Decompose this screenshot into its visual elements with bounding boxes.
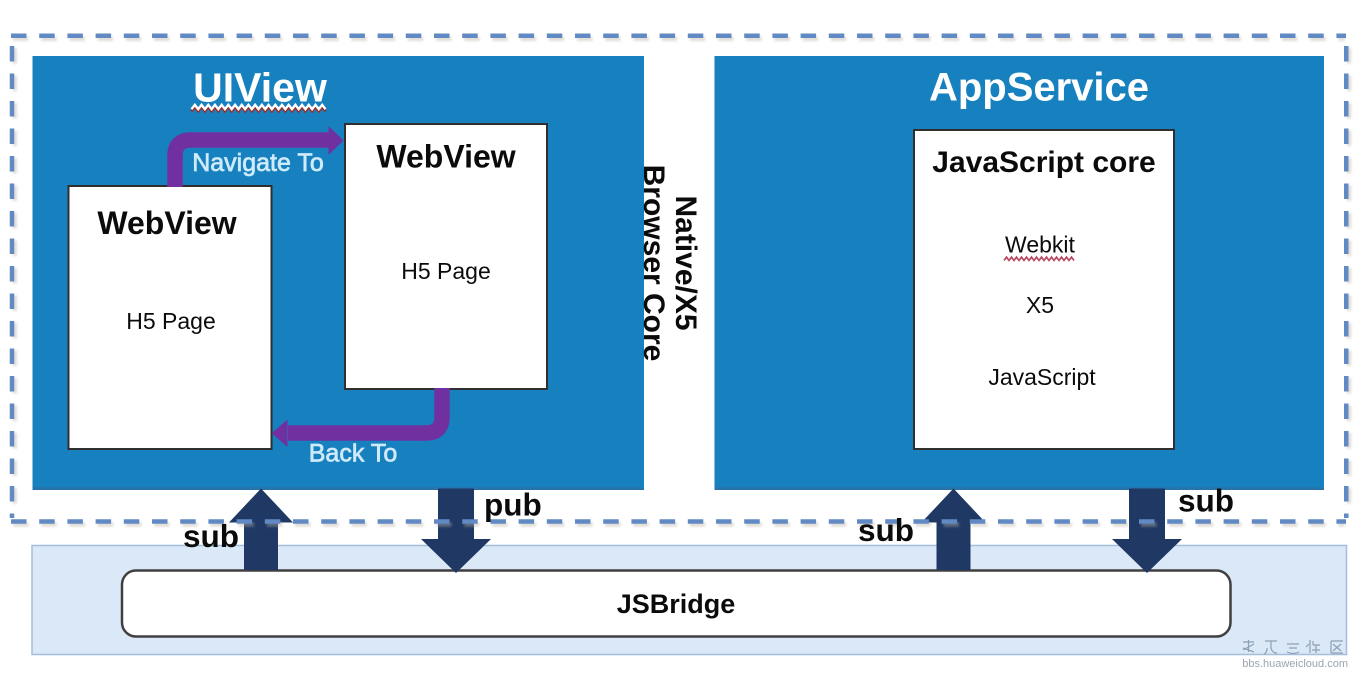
- svg-text:bbs.huaweicloud.com: bbs.huaweicloud.com: [1242, 658, 1348, 670]
- svg-text:WebView: WebView: [97, 205, 236, 241]
- svg-text:JavaScript core: JavaScript core: [932, 146, 1155, 179]
- svg-text:sub: sub: [1178, 483, 1234, 519]
- svg-text:X5: X5: [1026, 292, 1054, 318]
- svg-text:JavaScript: JavaScript: [988, 364, 1096, 390]
- svg-text:AppService: AppService: [929, 66, 1149, 110]
- svg-text:sub: sub: [858, 512, 914, 548]
- svg-text:UIView: UIView: [193, 65, 327, 111]
- svg-text:WebView: WebView: [376, 139, 515, 175]
- svg-text:H5 Page: H5 Page: [401, 258, 491, 284]
- svg-text:Browser Core: Browser Core: [637, 165, 670, 362]
- svg-text:Navigate To: Navigate To: [192, 149, 324, 177]
- svg-text:pub: pub: [484, 487, 542, 523]
- svg-text:Webkit: Webkit: [1005, 232, 1075, 258]
- svg-text:Native/X5: Native/X5: [669, 195, 702, 330]
- svg-text:sub: sub: [183, 518, 239, 554]
- svg-text:Back To: Back To: [309, 440, 397, 468]
- svg-text:JSBridge: JSBridge: [617, 589, 736, 619]
- svg-text:H5 Page: H5 Page: [126, 308, 216, 334]
